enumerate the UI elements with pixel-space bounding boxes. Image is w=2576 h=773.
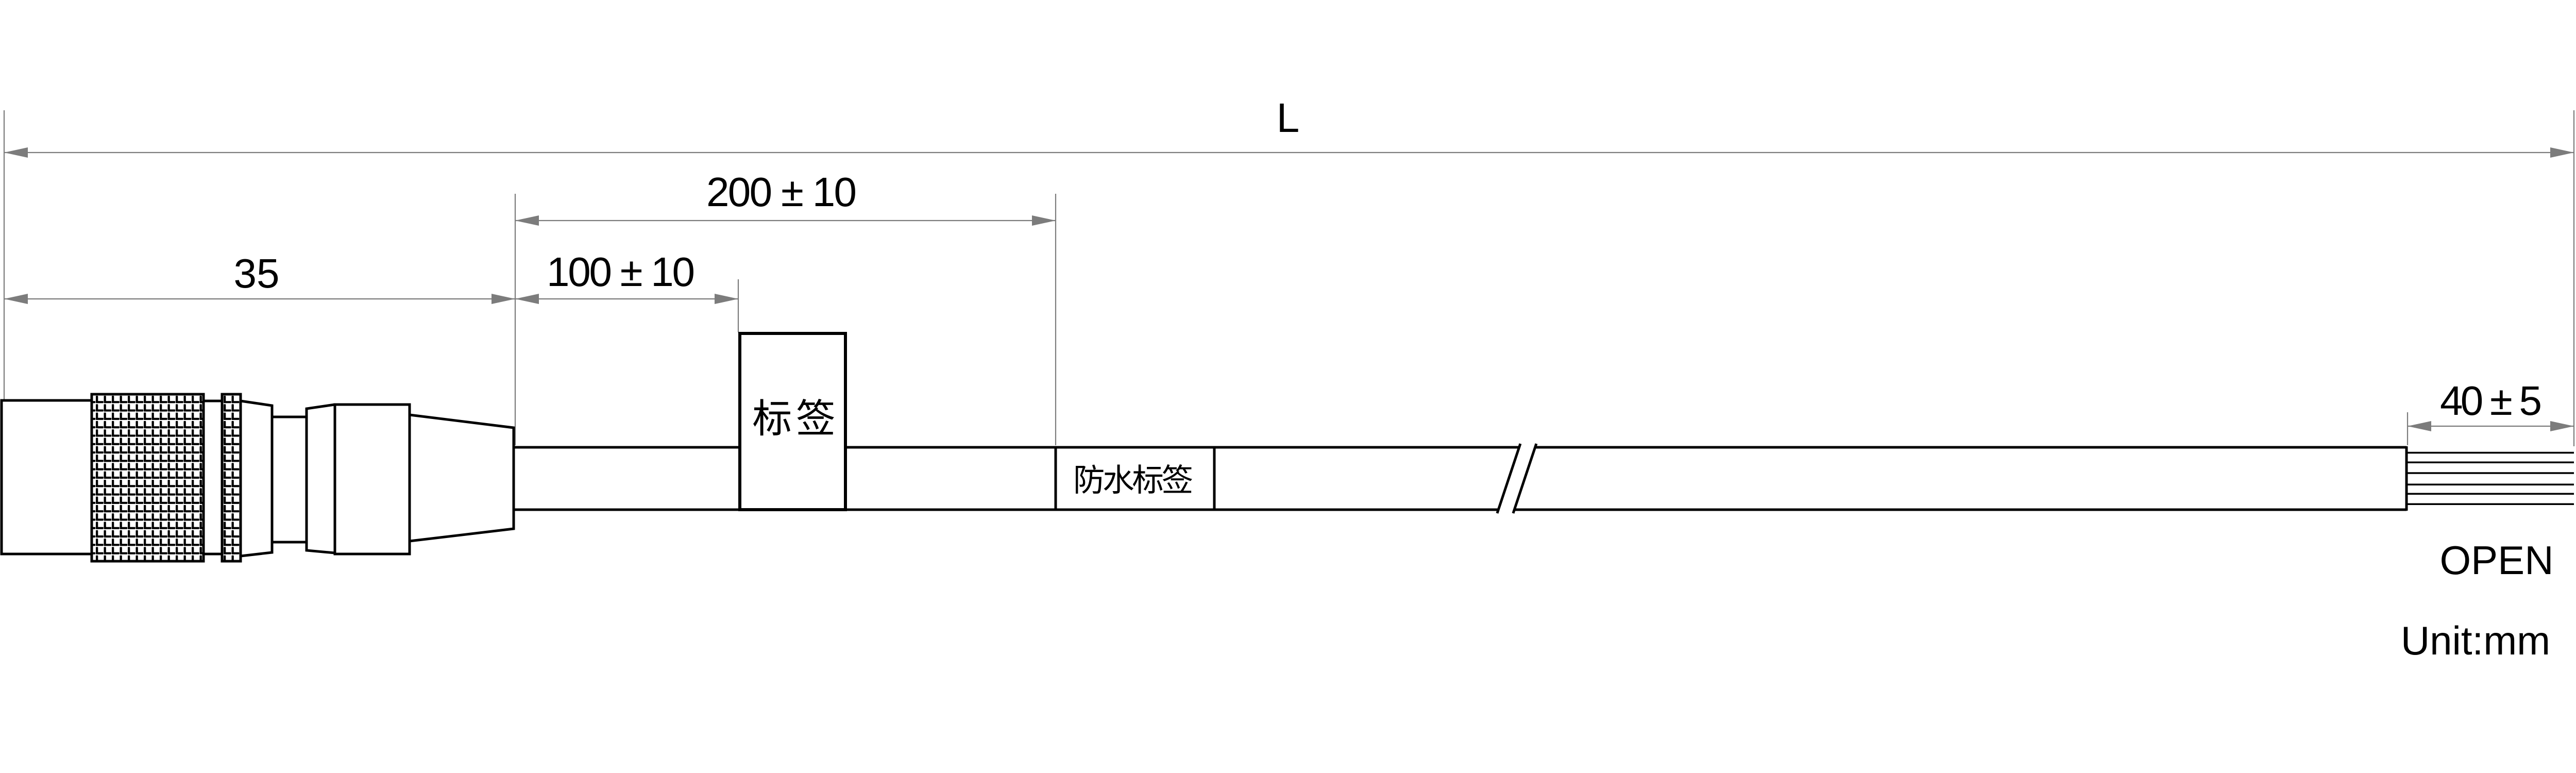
svg-text:Unit:mm: Unit:mm <box>2401 618 2550 663</box>
svg-text:100 ± 10: 100 ± 10 <box>547 249 695 295</box>
svg-text:L: L <box>1277 95 1300 141</box>
svg-text:35: 35 <box>234 250 280 296</box>
svg-text:200 ± 10: 200 ± 10 <box>706 169 857 215</box>
svg-text:40 ± 5: 40 ± 5 <box>2440 378 2542 424</box>
svg-text:OPEN: OPEN <box>2439 537 2553 583</box>
